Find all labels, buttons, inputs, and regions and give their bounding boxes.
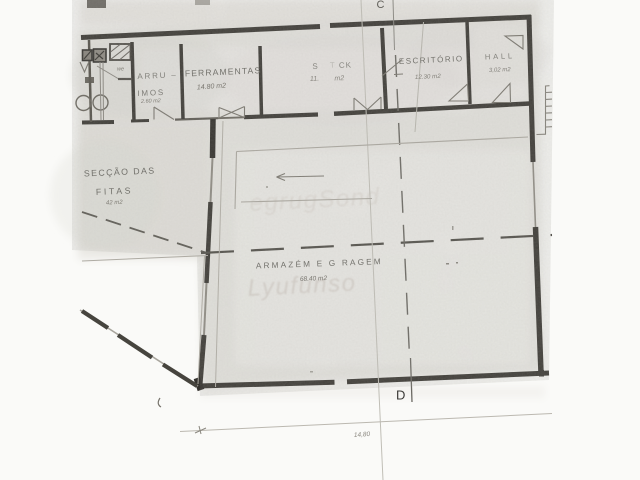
svg-text:D: D — [396, 388, 405, 403]
svg-text:14,80: 14,80 — [354, 431, 371, 439]
